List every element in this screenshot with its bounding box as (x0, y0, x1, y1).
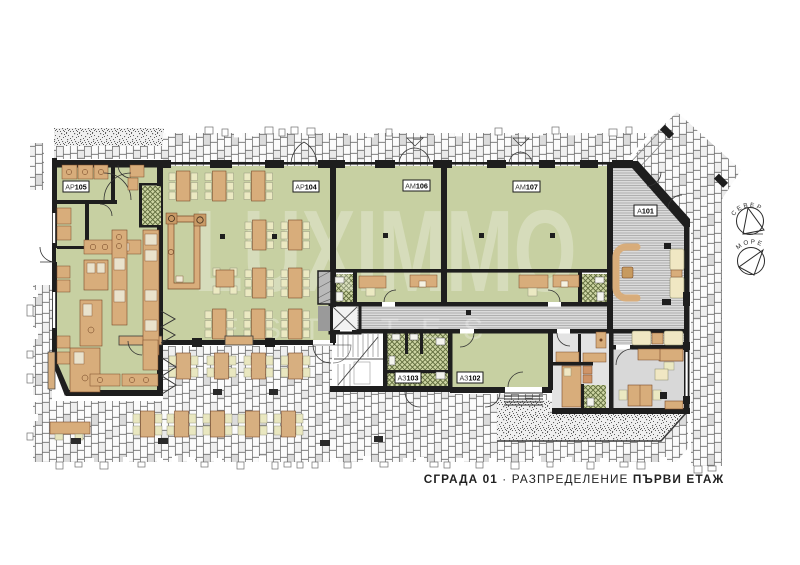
svg-text:АР104: АР104 (295, 183, 317, 192)
svg-text:А101: А101 (637, 207, 654, 216)
svg-text:СГРАДА 01 · РАЗПРЕДЕЛЕНИЕ ПЪРВ: СГРАДА 01 · РАЗПРЕДЕЛЕНИЕ ПЪРВИ ЕТАЖ (424, 472, 725, 486)
svg-text:АМ107: АМ107 (515, 183, 538, 192)
svg-text:АЗ103: АЗ103 (397, 374, 418, 383)
svg-text:АЗ102: АЗ102 (459, 374, 480, 383)
svg-text:АМ106: АМ106 (405, 182, 428, 191)
svg-text:АР105: АР105 (65, 183, 87, 192)
